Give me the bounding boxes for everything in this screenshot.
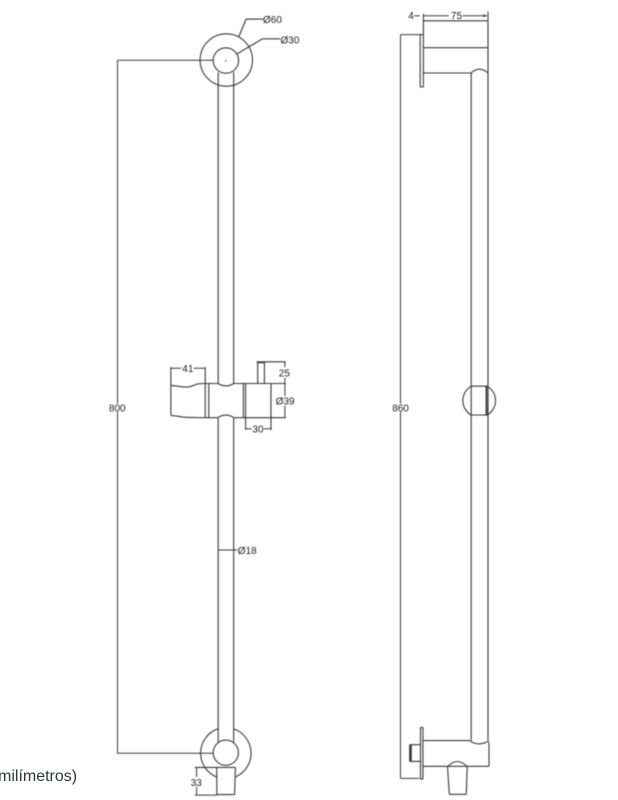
svg-text:Ø60: Ø60 — [263, 15, 282, 26]
svg-text:800: 800 — [109, 404, 126, 415]
svg-text:Ø39: Ø39 — [276, 396, 295, 407]
svg-text:30: 30 — [252, 424, 264, 435]
svg-text:Ø18: Ø18 — [238, 546, 257, 557]
svg-text:25: 25 — [279, 368, 291, 379]
svg-text:41: 41 — [182, 364, 194, 375]
svg-text:4: 4 — [408, 11, 414, 22]
svg-text:860: 860 — [392, 403, 409, 414]
svg-text:33: 33 — [191, 778, 203, 789]
svg-text:Ø30: Ø30 — [281, 36, 300, 47]
